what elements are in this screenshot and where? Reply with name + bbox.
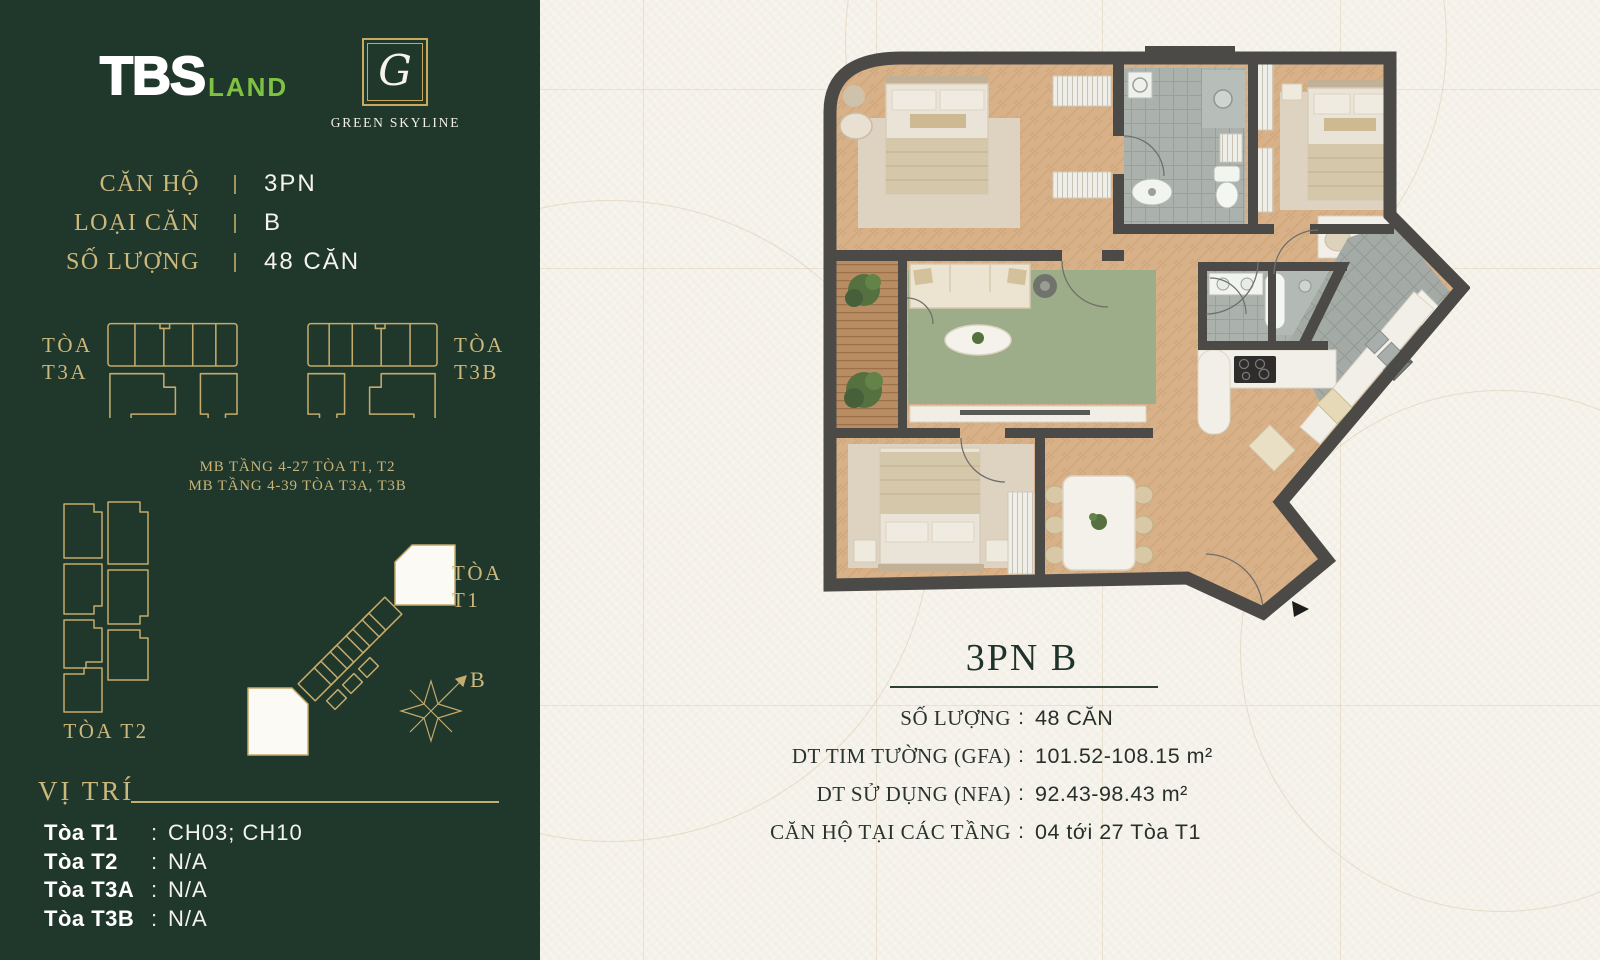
tower-label-line: TÒA <box>454 332 505 359</box>
tower-label-line: T3B <box>454 359 505 386</box>
bedroom-3 <box>848 444 1034 574</box>
info-value: 3PN <box>264 170 317 198</box>
spec-separator: : <box>1011 706 1031 730</box>
floorplan-rendering <box>810 40 1470 630</box>
bathroom-1 <box>1124 68 1245 224</box>
location-label: Tòa T3A <box>44 877 146 903</box>
info-label: CĂN HỘ <box>0 171 200 198</box>
spec-value: 04 tới 27 Tòa T1 <box>1031 820 1213 845</box>
info-value: 48 CĂN <box>264 248 360 276</box>
location-value: N/A <box>162 906 303 932</box>
living-room <box>908 264 1156 422</box>
divider <box>234 214 236 233</box>
unit-title: 3PN B <box>822 636 1222 680</box>
location-separator: : <box>146 877 162 903</box>
spec-separator: : <box>1011 744 1031 768</box>
tower-t1-label: TÒA T1 <box>452 560 503 614</box>
tower-t3a-label: TÒA T3A <box>42 332 93 386</box>
tower-label-line: TÒA <box>452 560 503 587</box>
title-underline <box>890 686 1158 688</box>
location-separator: : <box>146 849 162 875</box>
spec-label: CĂN HỘ TẠI CÁC TẦNG <box>721 820 1011 845</box>
brochure-page: 3PN B SỐ LƯỢNG : 48 CĂN DT TIM TƯỜNG (GF… <box>0 0 1600 960</box>
info-label: SỐ LƯỢNG <box>0 249 200 276</box>
compass-icon <box>401 676 466 741</box>
info-value: B <box>264 209 282 237</box>
location-value: N/A <box>162 849 303 875</box>
highlighted-unit-ch03 <box>395 545 455 605</box>
divider <box>234 175 236 194</box>
info-row-can-ho: CĂN HỘ 3PN <box>0 166 317 202</box>
location-separator: : <box>146 820 162 846</box>
sidebar: TBS LAND G GREEN SKYLINE CĂN HỘ 3PN LOẠI… <box>0 0 540 960</box>
spec-value: 92.43-98.43 m² <box>1031 782 1213 807</box>
location-table: Tòa T1 : CH03; CH10 Tòa T2 : N/A Tòa T3A… <box>44 819 303 933</box>
location-underline <box>131 801 499 803</box>
spec-value: 101.52-108.15 m² <box>1031 744 1213 769</box>
spec-label: DT TIM TƯỜNG (GFA) <box>721 744 1011 769</box>
monogram-letter: G <box>378 46 412 95</box>
project-name: GREEN SKYLINE <box>318 115 473 131</box>
spec-separator: : <box>1011 820 1031 844</box>
floor-note-line: MB TẦNG 4-27 TÒA T1, T2 <box>135 458 460 477</box>
divider <box>234 253 236 272</box>
tower-label-line: T3A <box>42 359 93 386</box>
tbs-land-logo: TBS LAND <box>100 52 288 102</box>
spec-label: SỐ LƯỢNG <box>721 706 1011 731</box>
tower-t2-diagram <box>62 498 154 718</box>
info-row-loai-can: LOẠI CĂN B <box>0 205 282 241</box>
location-label: Tòa T2 <box>44 849 146 875</box>
tower-label-line: TÒA <box>42 332 93 359</box>
compass-north-label: B <box>470 667 485 692</box>
floor-range-note: MB TẦNG 4-27 TÒA T1, T2 MB TẦNG 4-39 TÒA… <box>135 458 460 496</box>
location-label: Tòa T1 <box>44 820 146 846</box>
green-skyline-monogram: G <box>362 38 428 106</box>
balcony <box>834 258 907 432</box>
spec-separator: : <box>1011 782 1031 806</box>
info-row-so-luong: SỐ LƯỢNG 48 CĂN <box>0 244 360 280</box>
tbs-logo-text: TBS <box>100 52 205 102</box>
spec-value: 48 CĂN <box>1031 706 1213 731</box>
highlighted-unit-ch10 <box>248 688 308 755</box>
location-heading: VỊ TRÍ <box>38 776 134 807</box>
tower-t2-label: TÒA T2 <box>58 718 154 745</box>
entry-arrow-icon <box>1292 601 1309 617</box>
tower-t3a-diagram <box>100 314 245 418</box>
info-label: LOẠI CĂN <box>0 210 200 237</box>
unit-specs: SỐ LƯỢNG : 48 CĂN DT TIM TƯỜNG (GFA) : 1… <box>721 699 1213 851</box>
floor-note-line: MB TẦNG 4-39 TÒA T3A, T3B <box>135 477 460 496</box>
tower-label-line: T1 <box>452 587 503 614</box>
land-logo-text: LAND <box>208 74 288 100</box>
location-label: Tòa T3B <box>44 906 146 932</box>
location-value: N/A <box>162 877 303 903</box>
tower-t3b-label: TÒA T3B <box>454 332 505 386</box>
spec-label: DT SỬ DỤNG (NFA) <box>721 782 1011 807</box>
dining-area <box>1045 476 1153 570</box>
tower-t3b-diagram <box>300 314 445 418</box>
location-separator: : <box>146 906 162 932</box>
location-value: CH03; CH10 <box>162 820 303 846</box>
